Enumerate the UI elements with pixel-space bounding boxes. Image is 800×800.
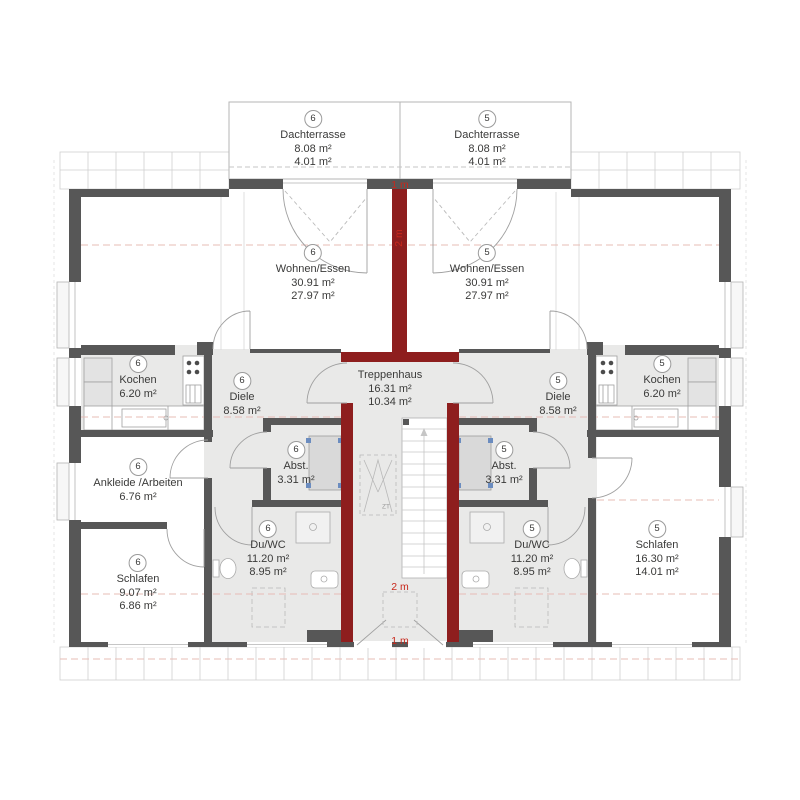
storage-appliance-unit5 <box>456 436 493 490</box>
staircase <box>402 418 447 578</box>
floor-plan-page: 6 Dachterrasse 8.08 m² 4.01 m² 5 Dachter… <box>0 0 800 800</box>
room-floors <box>81 345 719 642</box>
storage-appliance-unit6 <box>306 436 343 490</box>
roof-terraces <box>229 102 571 179</box>
floor-plan-drawing <box>0 0 800 800</box>
